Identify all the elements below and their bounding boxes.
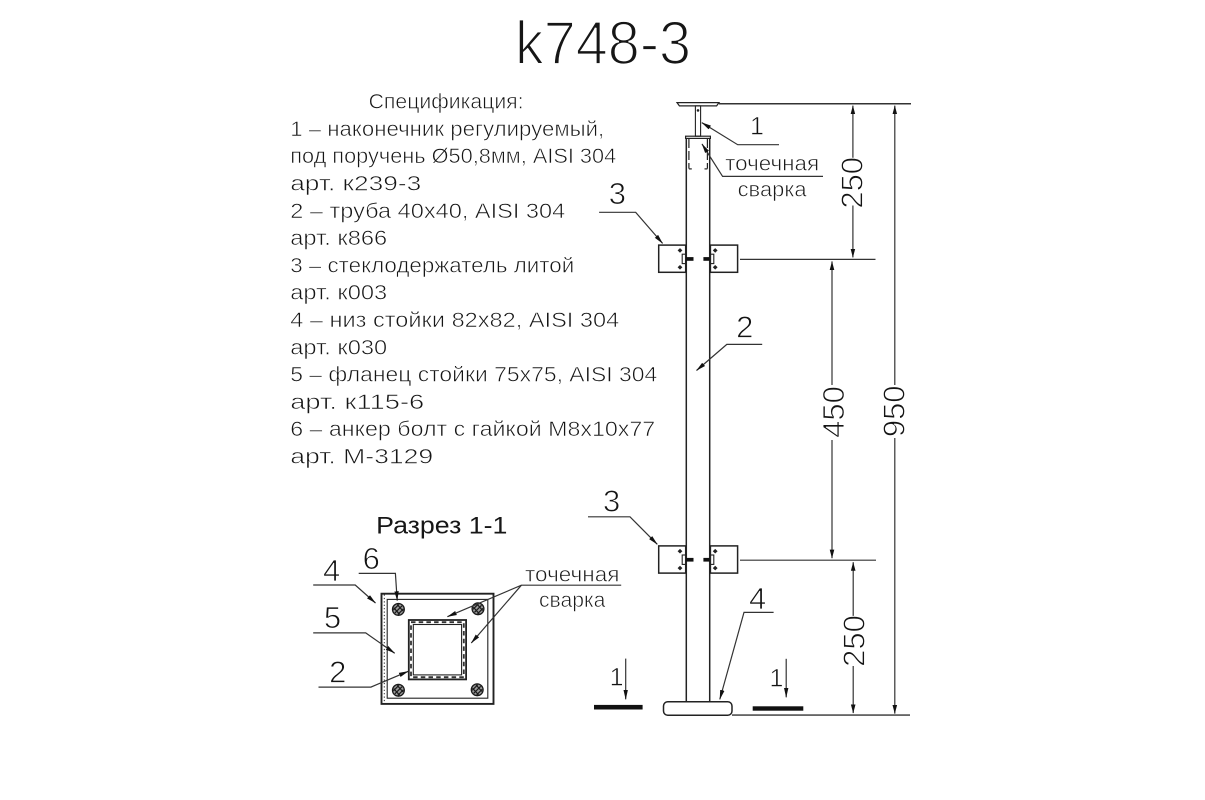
svg-text:3: 3 xyxy=(609,176,626,211)
svg-text:3 – стеклодержатель литой: 3 – стеклодержатель литой xyxy=(290,253,574,277)
svg-text:250: 250 xyxy=(835,157,870,209)
svg-text:2: 2 xyxy=(736,309,753,344)
svg-text:арт. к115-6: арт. к115-6 xyxy=(290,390,424,414)
svg-text:450: 450 xyxy=(816,386,851,438)
svg-text:1: 1 xyxy=(770,665,784,693)
svg-text:арт. к239-3: арт. к239-3 xyxy=(290,172,421,196)
svg-text:2: 2 xyxy=(329,655,346,690)
svg-text:4: 4 xyxy=(749,581,766,616)
svg-text:2 – труба 40х40, AISI 304: 2 – труба 40х40, AISI 304 xyxy=(290,199,565,223)
svg-text:точечная: точечная xyxy=(525,562,619,586)
svg-text:арт. к030: арт. к030 xyxy=(290,335,387,359)
svg-text:арт. к003: арт. к003 xyxy=(290,281,387,305)
svg-text:3: 3 xyxy=(603,483,620,518)
svg-text:4: 4 xyxy=(323,553,340,588)
svg-text:6 – анкер болт с гайкой М8х10х: 6 – анкер болт с гайкой М8х10х77 xyxy=(290,417,655,441)
svg-text:950: 950 xyxy=(876,385,911,437)
svg-text:5: 5 xyxy=(324,600,341,635)
svg-text:арт. М-3129: арт. М-3129 xyxy=(290,445,433,469)
svg-text:k748-3: k748-3 xyxy=(515,9,691,77)
svg-text:арт. к866: арт. к866 xyxy=(290,226,387,250)
svg-text:250: 250 xyxy=(836,615,871,667)
svg-text:Разрез 1-1: Разрез 1-1 xyxy=(376,513,507,540)
svg-text:1: 1 xyxy=(750,113,764,141)
svg-text:5 – фланец стойки 75х75, AISI: 5 – фланец стойки 75х75, AISI 304 xyxy=(290,363,657,387)
svg-text:1 – наконечник регулируемый,: 1 – наконечник регулируемый, xyxy=(290,117,604,141)
svg-text:под поручень Ø50,8мм, AISI 304: под поручень Ø50,8мм, AISI 304 xyxy=(290,144,616,168)
svg-text:сварка: сварка xyxy=(539,588,606,612)
svg-text:Спецификация:: Спецификация: xyxy=(369,90,524,114)
svg-text:6: 6 xyxy=(363,541,380,576)
svg-text:4 – низ стойки 82х82, AISI 304: 4 – низ стойки 82х82, AISI 304 xyxy=(290,308,619,332)
svg-text:точечная: точечная xyxy=(725,151,819,175)
svg-text:сварка: сварка xyxy=(738,178,807,202)
svg-text:1: 1 xyxy=(610,664,624,692)
